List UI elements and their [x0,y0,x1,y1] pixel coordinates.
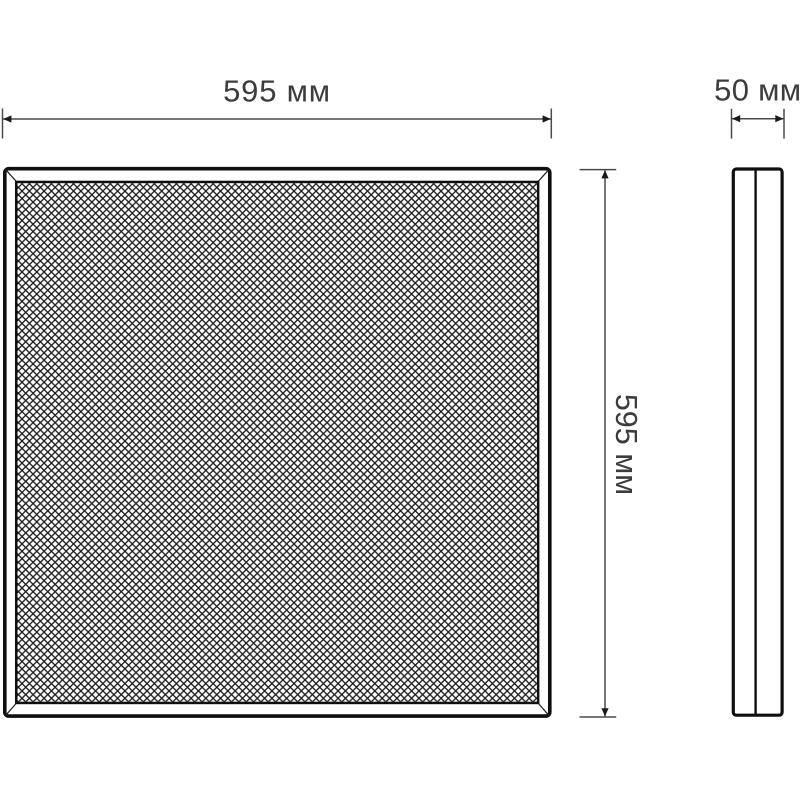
svg-text:595 мм: 595 мм [609,394,643,495]
svg-text:595 мм: 595 мм [223,74,331,109]
svg-text:50 мм: 50 мм [714,73,800,108]
